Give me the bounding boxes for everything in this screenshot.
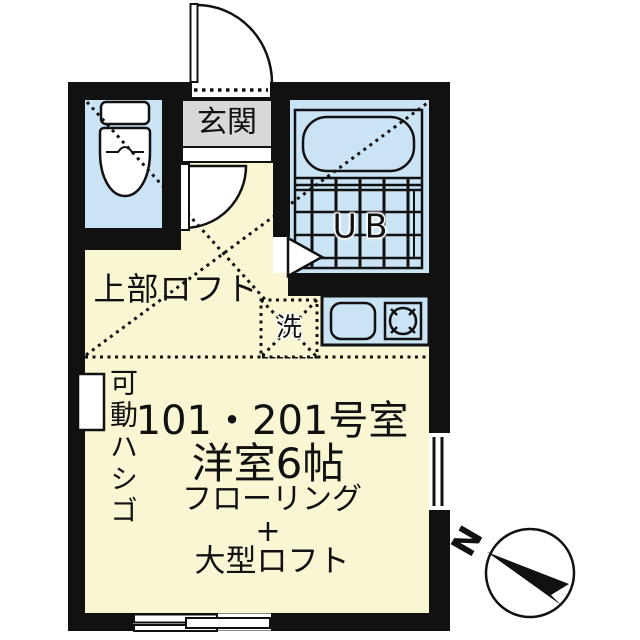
room-size-label: 洋室6帖 — [192, 443, 345, 485]
kitchen-counter — [322, 296, 429, 345]
ladder-label: 可動ハシゴ — [108, 368, 136, 528]
room-number-label: 101・201号室 — [136, 401, 409, 441]
flooring-label: フローリング — [182, 485, 362, 515]
right-window-icon — [429, 433, 450, 510]
interior-door-leaf — [180, 164, 189, 230]
wall-toilet-side — [162, 100, 181, 250]
large-loft-label: 大型ロフト — [195, 547, 350, 578]
genkan-label: 玄関 — [197, 108, 257, 138]
upper-loft-label: 上部ロフト — [93, 273, 258, 305]
wall-ub-side — [273, 100, 290, 237]
wall-left — [68, 82, 85, 631]
wall-ub-bottom — [288, 273, 429, 296]
floor-plan: 玄関 UB 上部ロフト 洗 可動ハシゴ 101・201号室 洋室6帖 フローリン… — [0, 0, 640, 640]
wall-toilet-bottom — [80, 228, 181, 250]
bottom-window-icon — [133, 614, 271, 632]
entrance-door-arc-icon — [191, 4, 273, 83]
laundry-label: 洗 — [276, 315, 302, 341]
genkan-step — [182, 147, 272, 162]
unit-bath-label: UB — [325, 210, 396, 243]
wall-right — [429, 82, 450, 631]
ladder-marker-icon — [78, 374, 104, 430]
toilet-icon — [100, 102, 150, 196]
compass-icon — [486, 529, 574, 617]
plus-label: + — [255, 517, 280, 547]
